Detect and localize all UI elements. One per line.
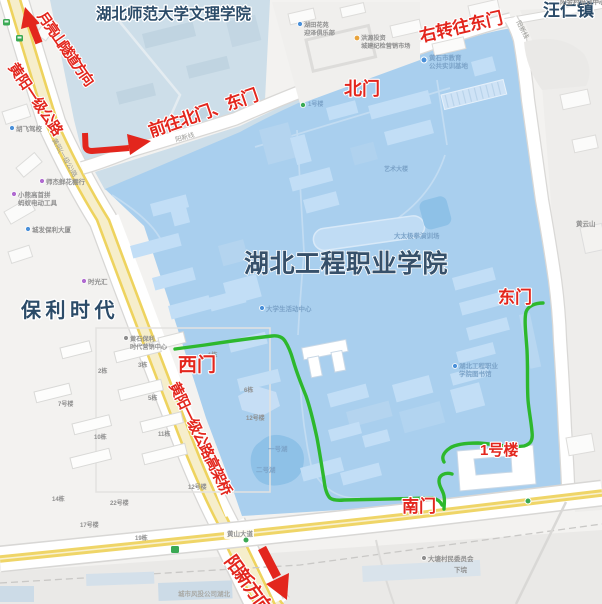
svg-text:艺术大楼: 艺术大楼 xyxy=(384,165,408,173)
svg-text:湖北师范大学文理学院: 湖北师范大学文理学院 xyxy=(96,4,252,23)
svg-text:北门: 北门 xyxy=(344,78,380,99)
svg-text:5栋: 5栋 xyxy=(148,394,157,402)
svg-text:湖北工程职业: 湖北工程职业 xyxy=(459,361,499,370)
svg-text:城市风投公司湖北: 城市风投公司湖北 xyxy=(178,589,231,598)
svg-text:2栋: 2栋 xyxy=(98,367,107,375)
svg-text:黄石保利: 黄石保利 xyxy=(130,335,155,343)
svg-text:学院图书馆: 学院图书馆 xyxy=(459,369,492,378)
svg-text:胡飞驾校: 胡飞驾校 xyxy=(16,124,43,133)
svg-text:城建纪检营销市场: 城建纪检营销市场 xyxy=(361,42,411,50)
svg-text:师杰鲜花棚行: 师杰鲜花棚行 xyxy=(46,177,86,186)
svg-text:东门: 东门 xyxy=(498,287,532,307)
svg-text:保利时代: 保利时代 xyxy=(20,299,119,322)
svg-text:6栋: 6栋 xyxy=(244,386,253,394)
svg-text:时代营销中心: 时代营销中心 xyxy=(130,343,168,351)
svg-text:22号楼: 22号楼 xyxy=(110,499,129,507)
svg-text:下垸: 下垸 xyxy=(454,565,468,574)
svg-text:城发保利大厦: 城发保利大厦 xyxy=(32,225,72,234)
svg-text:蚂蚁电动工具: 蚂蚁电动工具 xyxy=(18,198,58,207)
svg-text:1号楼: 1号楼 xyxy=(480,441,518,459)
svg-text:南门: 南门 xyxy=(402,496,436,516)
svg-text:12号楼: 12号楼 xyxy=(246,414,265,422)
svg-text:3栋: 3栋 xyxy=(138,361,147,369)
svg-text:小熊高首拼: 小熊高首拼 xyxy=(17,190,51,199)
svg-text:湖田花苑: 湖田花苑 xyxy=(304,21,330,29)
svg-text:17号楼: 17号楼 xyxy=(80,521,99,529)
svg-text:黄云山: 黄云山 xyxy=(576,219,596,228)
svg-text:一号湖: 一号湖 xyxy=(268,444,288,453)
svg-text:时光汇: 时光汇 xyxy=(88,277,108,286)
svg-text:7号楼: 7号楼 xyxy=(58,400,73,408)
svg-text:12号楼: 12号楼 xyxy=(188,483,207,491)
svg-text:公共实训基地: 公共实训基地 xyxy=(429,61,469,70)
svg-text:大塘村民委员会: 大塘村民委员会 xyxy=(428,554,474,563)
svg-text:黄石市教育: 黄石市教育 xyxy=(429,53,462,62)
svg-text:大太极拳演训场: 大太极拳演训场 xyxy=(394,231,440,240)
svg-text:黄山大道: 黄山大道 xyxy=(227,529,254,538)
svg-text:1号楼: 1号楼 xyxy=(308,100,323,108)
svg-text:阳金村培训中心: 阳金村培训中心 xyxy=(560,0,602,6)
svg-text:10栋: 10栋 xyxy=(94,433,107,441)
svg-text:11栋: 11栋 xyxy=(158,430,170,438)
svg-text:19栋: 19栋 xyxy=(135,534,148,542)
svg-text:迎泽俱乐部: 迎泽俱乐部 xyxy=(304,29,336,37)
svg-text:大学生活动中心: 大学生活动中心 xyxy=(266,304,312,313)
svg-text:洪源投资: 洪源投资 xyxy=(361,34,387,42)
svg-text:14栋: 14栋 xyxy=(52,495,65,503)
svg-text:湖北工程职业学院: 湖北工程职业学院 xyxy=(244,249,448,278)
svg-text:二号湖: 二号湖 xyxy=(256,465,276,474)
svg-text:西门: 西门 xyxy=(178,353,216,376)
